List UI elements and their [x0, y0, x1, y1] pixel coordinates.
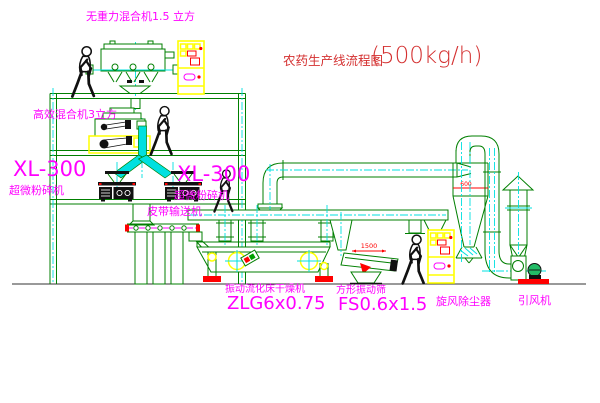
dryer-hood-duct: [188, 205, 448, 252]
square-sieve: 1500: [341, 242, 398, 284]
label-mill-left-model: XL-300: [13, 158, 86, 180]
person-figure-second-floor: [151, 107, 172, 155]
induced-draft-fan: [511, 256, 549, 284]
cyclone-separator: 600: [453, 142, 488, 263]
label-mill-right-model: XL-300: [177, 163, 250, 185]
label-high-efficiency-mixer: 高效混合机3立方: [33, 109, 117, 121]
diagram-title: 农药生产线流程图: [283, 55, 383, 68]
control-cabinet-right: [428, 230, 454, 283]
sieve-dimension-text: 1500: [361, 242, 378, 250]
cad-flow-diagram: 1500 600: [0, 0, 600, 403]
label-gravity-mixer: 无重力混合机1.5 立方: [86, 11, 195, 23]
label-sieve-model: FS0.6x1.5: [338, 296, 427, 315]
label-fan: 引风机: [518, 295, 551, 307]
label-dryer-model: ZLG6x0.75: [227, 295, 326, 314]
person-figure-roof: [72, 47, 93, 97]
label-mill-left-name: 超微粉碎机: [9, 185, 64, 197]
label-cyclone: 旋风除尘器: [436, 296, 491, 308]
control-cabinet-top: [178, 41, 204, 94]
label-mill-right-name: 超微粉碎机: [174, 190, 229, 202]
label-belt-conveyor: 皮带输送机: [147, 206, 202, 218]
person-figure-ground: [403, 235, 424, 283]
diagram-title-capacity: (500kg/h): [371, 45, 482, 68]
